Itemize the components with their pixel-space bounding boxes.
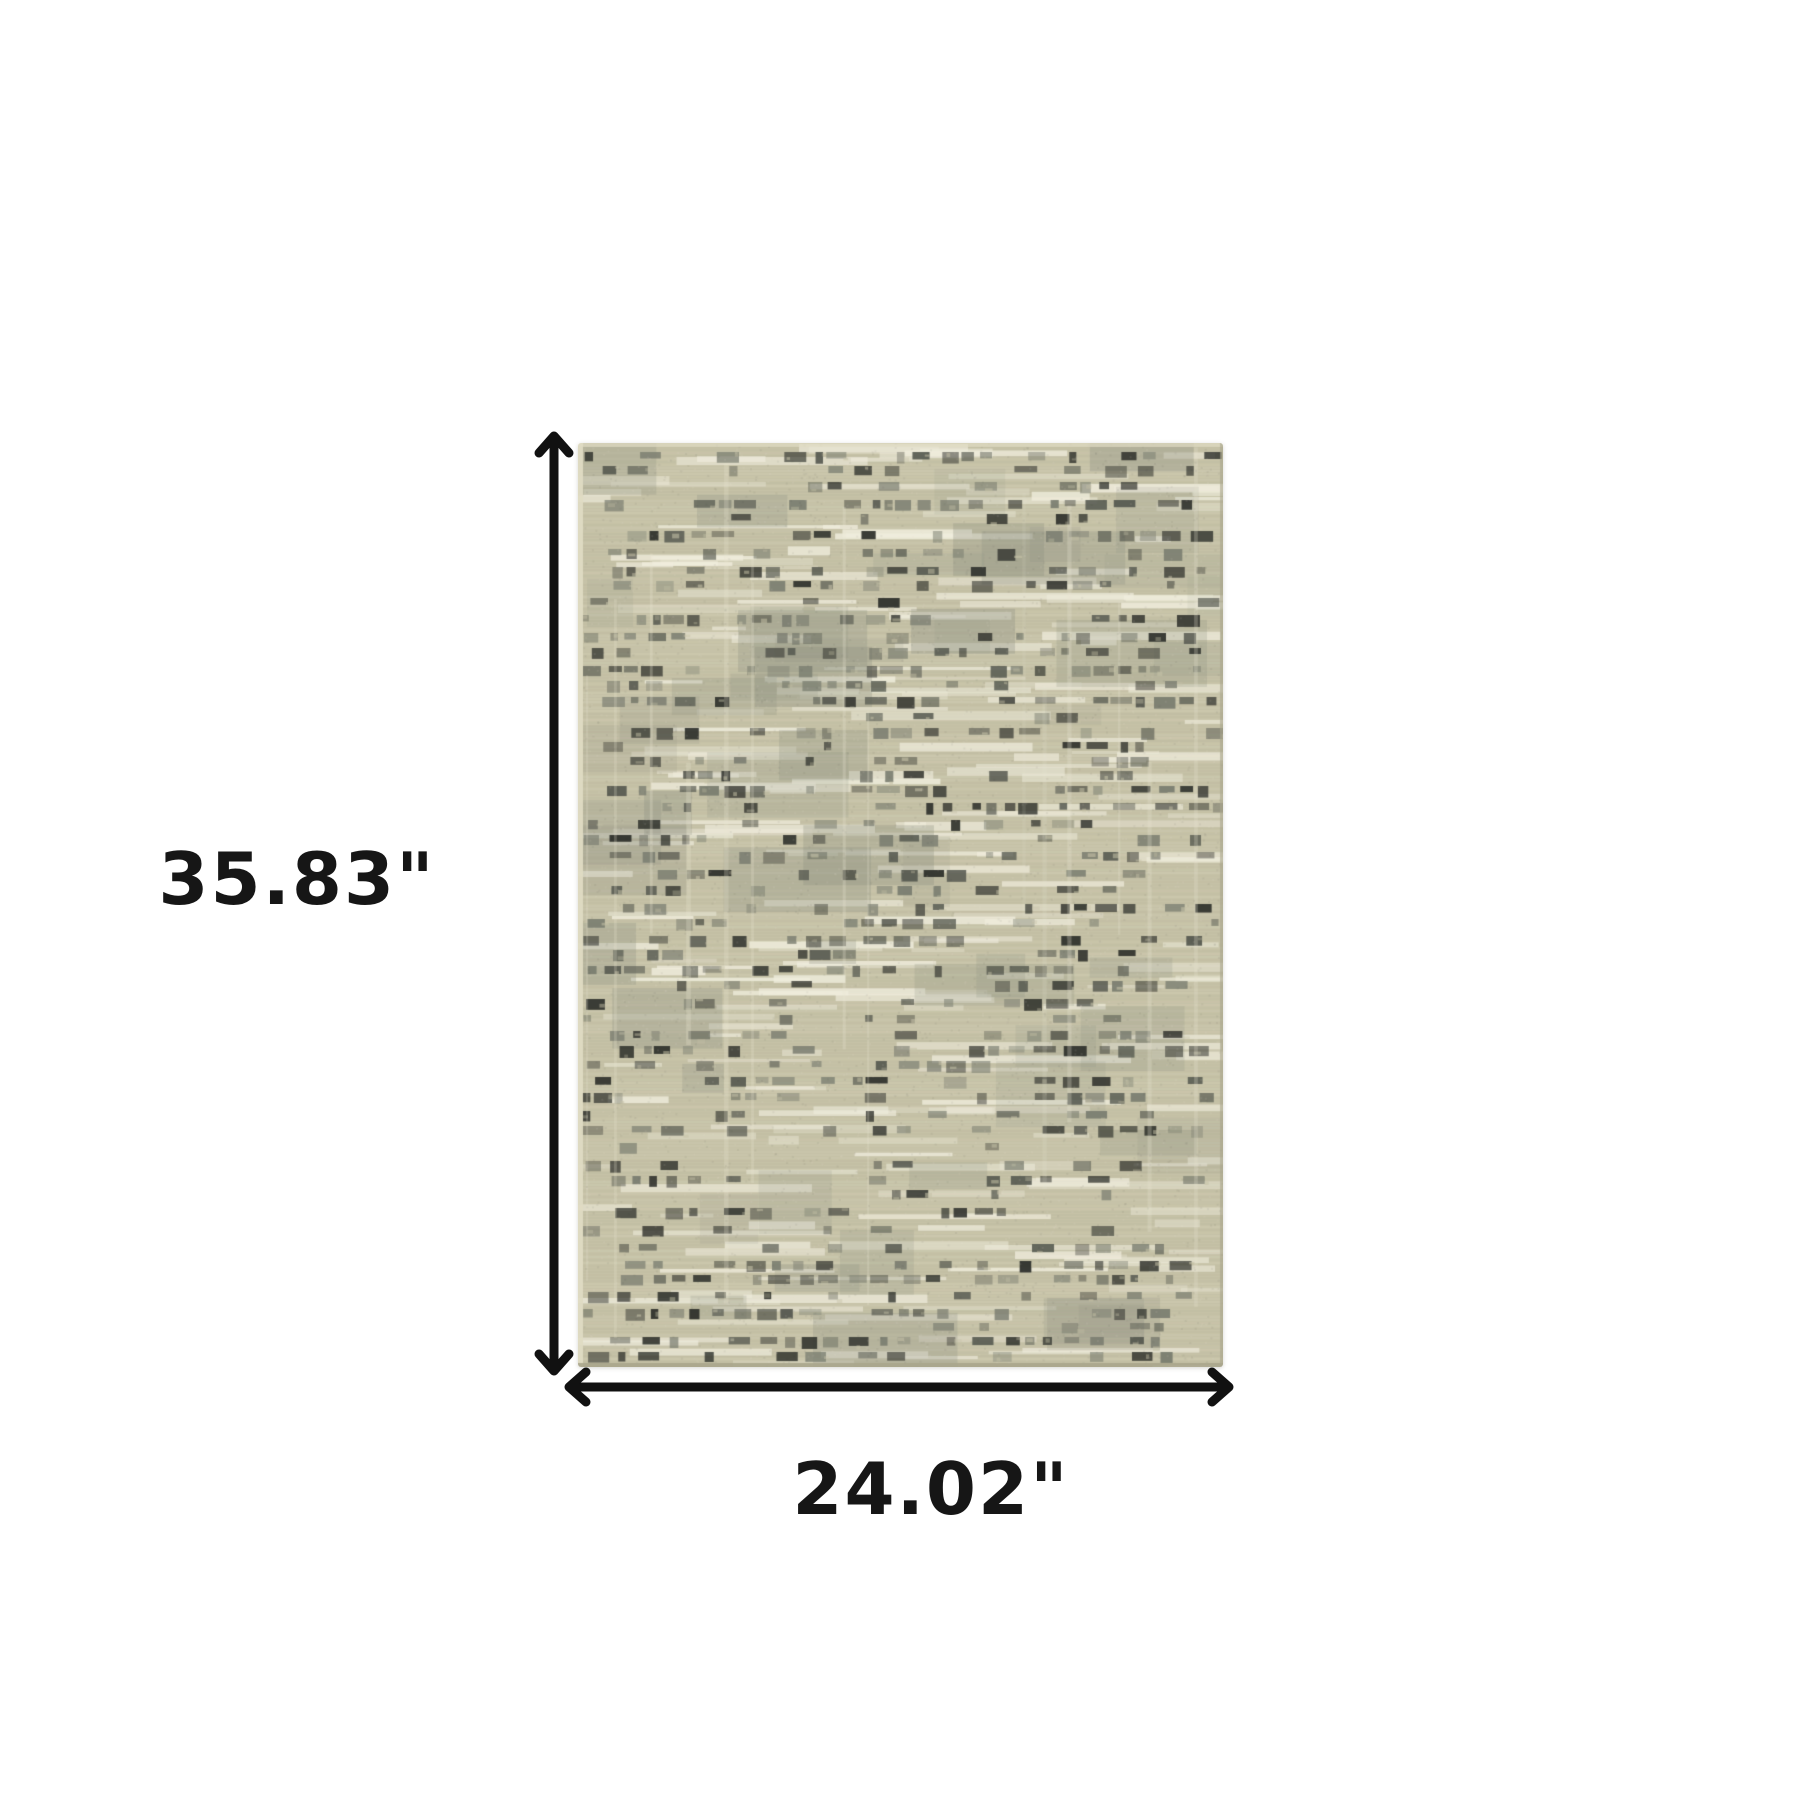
arrow-up-icon: [539, 436, 569, 453]
dimension-diagram: 35.83" 24.02": [0, 0, 1800, 1800]
height-dimension-arrow: [539, 436, 569, 1371]
arrow-left-icon: [569, 1372, 586, 1402]
width-dimension-label: 24.02": [792, 1447, 1069, 1531]
arrow-right-icon: [1212, 1372, 1229, 1402]
arrow-down-icon: [539, 1354, 569, 1371]
width-dimension-arrow: [569, 1372, 1229, 1402]
rug-image: [578, 443, 1223, 1367]
height-dimension-label: 35.83": [158, 837, 435, 921]
